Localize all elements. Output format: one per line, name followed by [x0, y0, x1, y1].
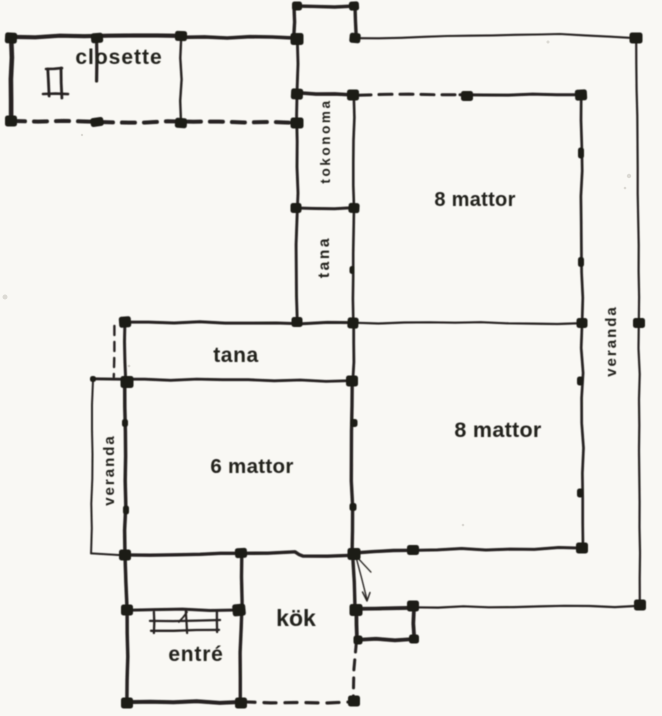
svg-text:tana: tana [316, 236, 333, 278]
svg-text:tana: tana [213, 344, 259, 367]
svg-text:veranda: veranda [101, 434, 118, 506]
svg-text:tokonoma: tokonoma [318, 98, 333, 183]
svg-text:6 mattor: 6 mattor [210, 455, 293, 478]
svg-text:entré: entré [168, 643, 223, 666]
svg-text:kök: kök [276, 605, 316, 631]
svg-text:8 mattor: 8 mattor [454, 418, 542, 442]
svg-text:8 mattor: 8 mattor [434, 189, 515, 211]
svg-text:closette: closette [75, 46, 162, 69]
svg-text:veranda: veranda [603, 305, 620, 377]
